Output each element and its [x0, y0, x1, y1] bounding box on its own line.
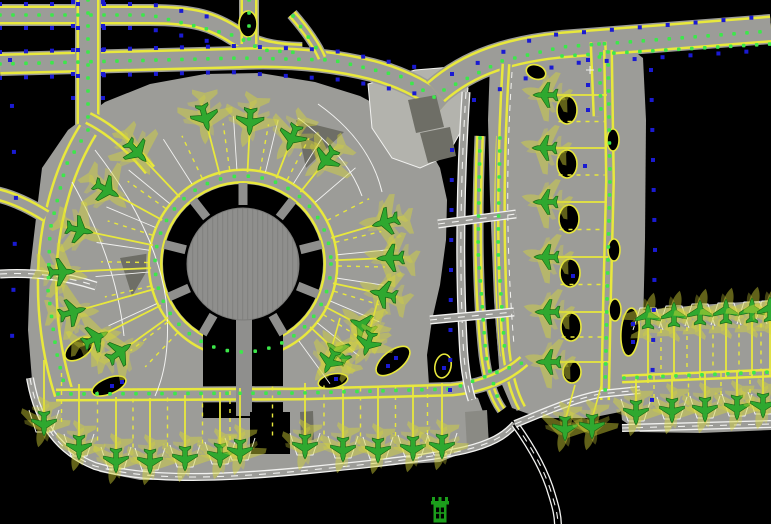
edge-light: [549, 66, 553, 70]
centerline-light: [608, 141, 612, 145]
centerline-light: [598, 55, 602, 59]
centerline-light: [179, 21, 183, 25]
centerline-light: [141, 13, 145, 17]
centerline-light: [180, 58, 184, 62]
centerline-light: [606, 50, 610, 54]
centerline-light: [476, 240, 480, 244]
centerline-light: [604, 349, 608, 353]
edge-light: [652, 218, 656, 222]
centerline-light: [303, 391, 307, 395]
edge-light: [8, 58, 12, 62]
edge-light: [0, 2, 2, 6]
centerline-light: [157, 286, 161, 290]
centerline-light: [478, 279, 482, 283]
centerline-light: [86, 0, 90, 2]
centerline-light: [503, 344, 507, 348]
centerline-light: [484, 357, 488, 361]
edge-light: [577, 61, 581, 65]
centerline-light: [147, 392, 151, 396]
centerline-light: [638, 50, 642, 54]
centerline-light: [497, 253, 501, 257]
centerline-light: [37, 13, 41, 17]
centerline-light: [501, 318, 505, 322]
edge-light: [11, 288, 15, 292]
centerline-light: [193, 188, 197, 192]
edge-light: [387, 86, 391, 90]
edge-light: [472, 98, 476, 102]
centerline-light: [247, 11, 251, 15]
centerline-light: [612, 51, 616, 55]
centerline-light: [212, 345, 216, 349]
centerline-light: [622, 376, 626, 380]
centerline-light: [247, 174, 251, 178]
centerline-light: [115, 59, 119, 63]
centerline-light: [336, 60, 340, 64]
centerline-light: [599, 94, 603, 98]
edge-light: [450, 148, 454, 152]
edge-light: [448, 388, 452, 392]
centerline-light: [732, 32, 736, 36]
centerline-light: [706, 34, 710, 38]
centerline-light: [217, 30, 221, 34]
centerline-light: [664, 48, 668, 52]
edge-light: [284, 46, 288, 50]
centerline-light: [368, 389, 372, 393]
edge-light: [13, 242, 17, 246]
centerline-light: [605, 323, 609, 327]
centerline-light: [205, 27, 209, 31]
centerline-light: [498, 136, 502, 140]
centerline-light: [716, 45, 720, 49]
centerline-light: [329, 255, 333, 259]
centerline-light: [471, 380, 475, 384]
edge-light: [284, 74, 288, 78]
edge-light: [71, 24, 75, 28]
centerline-light: [277, 391, 281, 395]
centerline-light: [755, 43, 759, 47]
centerline-light: [478, 266, 482, 270]
centerline-light: [459, 384, 463, 388]
centerline-light: [168, 312, 172, 316]
edge-light: [154, 46, 158, 50]
edge-light: [336, 77, 340, 81]
centerline-light: [605, 310, 609, 314]
edge-light: [0, 76, 2, 80]
centerline-light: [47, 276, 51, 280]
edge-light: [232, 70, 236, 74]
centerline-light: [700, 373, 704, 377]
edge-light: [744, 50, 748, 54]
centerline-light: [328, 276, 332, 280]
centerline-light: [177, 323, 181, 327]
centerline-light: [232, 56, 236, 60]
centerline-light: [230, 33, 234, 37]
centerline-light: [495, 371, 499, 375]
centerline-light: [654, 38, 658, 42]
edge-light: [206, 71, 210, 75]
centerline-light: [604, 336, 608, 340]
edge-light: [650, 128, 654, 132]
control-tower-icon: [431, 497, 449, 523]
centerline-light: [253, 44, 257, 48]
edge-light: [387, 60, 391, 64]
centerline-light: [0, 62, 2, 66]
edge-light: [12, 150, 16, 154]
edge-light: [24, 75, 28, 79]
centerline-light: [247, 0, 251, 2]
centerline-light: [128, 59, 132, 63]
edge-light: [10, 104, 14, 108]
edge-light: [582, 30, 586, 34]
centerline-light: [86, 76, 90, 80]
edge-light: [554, 33, 558, 37]
centerline-light: [58, 366, 62, 370]
centerline-light: [477, 71, 481, 75]
apron-island: [607, 129, 619, 151]
centerline-light: [502, 331, 506, 335]
centerline-light: [86, 89, 90, 93]
centerline-light: [498, 175, 502, 179]
centerline-light: [11, 13, 15, 17]
centerline-light: [606, 258, 610, 262]
centerline-light: [607, 245, 611, 249]
centerline-light: [607, 76, 611, 80]
centerline-light: [239, 350, 243, 354]
edge-light: [442, 366, 446, 370]
centerline-light: [303, 325, 307, 329]
edge-light: [205, 14, 209, 18]
edge-light: [498, 87, 502, 91]
centerline-light: [52, 211, 56, 215]
terminal-gate-stub: [239, 183, 248, 205]
edge-light: [501, 50, 505, 54]
centerline-light: [327, 241, 331, 245]
edge-light: [650, 98, 654, 102]
centerline-light: [526, 53, 530, 57]
centerline-light: [608, 206, 612, 210]
centerline-light: [297, 57, 301, 61]
edge-light: [205, 39, 209, 43]
centerline-light: [55, 353, 59, 357]
edge-light: [631, 322, 635, 326]
centerline-light: [206, 182, 210, 186]
centerline-light: [719, 33, 723, 37]
edge-light: [336, 50, 340, 54]
centerline-light: [586, 53, 590, 57]
centerline-light: [604, 375, 608, 379]
centerline-light: [251, 391, 255, 395]
centerline-light: [86, 63, 90, 67]
edge-light: [652, 308, 656, 312]
edge-light: [71, 96, 75, 100]
centerline-light: [616, 41, 620, 45]
centerline-light: [454, 82, 458, 86]
terminal-concourse: [187, 208, 299, 320]
centerline-light: [607, 219, 611, 223]
centerline-light: [410, 82, 414, 86]
centerline-light: [121, 392, 125, 396]
edge-light: [120, 380, 124, 384]
centerline-light: [219, 57, 223, 61]
centerline-light: [355, 390, 359, 394]
edge-light: [128, 73, 132, 77]
apron-island: [608, 239, 620, 261]
edge-light: [101, 72, 105, 76]
centerline-light: [253, 349, 257, 353]
edge-light: [652, 188, 656, 192]
centerline-light: [674, 374, 678, 378]
edge-light: [24, 26, 28, 30]
centerline-light: [758, 30, 762, 34]
centerline-light: [86, 128, 90, 132]
centerline-light: [182, 197, 186, 201]
centerline-light: [629, 40, 633, 44]
centerline-light: [53, 340, 57, 344]
centerline-light: [47, 263, 51, 267]
edge-light: [180, 71, 184, 75]
centerline-light: [599, 107, 603, 111]
centerline-light: [481, 318, 485, 322]
centerline-light: [752, 371, 756, 375]
edge-light: [653, 248, 657, 252]
edge-light: [448, 358, 452, 362]
centerline-light: [499, 292, 503, 296]
edge-light: [71, 48, 75, 52]
centerline-light: [661, 375, 665, 379]
centerline-light: [65, 161, 69, 165]
centerline-light: [154, 273, 158, 277]
centerline-light: [265, 49, 269, 53]
edge-light: [310, 76, 314, 80]
edge-light: [571, 274, 575, 278]
centerline-light: [141, 59, 145, 63]
centerline-light: [538, 50, 542, 54]
cad-viewport: [0, 0, 771, 524]
centerline-light: [482, 331, 486, 335]
centerline-light: [86, 37, 90, 41]
edge-light: [449, 238, 453, 242]
edge-light: [638, 25, 642, 29]
centerline-light: [238, 391, 242, 395]
centerline-light: [51, 328, 55, 332]
centerline-light: [291, 51, 295, 55]
centerline-light: [187, 332, 191, 336]
edge-light: [412, 91, 416, 95]
centerline-light: [24, 13, 28, 17]
centerline-light: [577, 44, 581, 48]
centerline-light: [226, 349, 230, 353]
centerline-light: [56, 392, 60, 396]
edge-light: [633, 57, 637, 61]
centerline-light: [50, 61, 54, 65]
centerline-light: [551, 47, 555, 51]
centerline-light: [47, 250, 51, 254]
centerline-light: [497, 227, 501, 231]
centerline-light: [648, 375, 652, 379]
centerline-light: [76, 60, 80, 64]
centerline-light: [713, 372, 717, 376]
centerline-light: [86, 50, 90, 54]
centerline-light: [89, 60, 93, 64]
centerline-light: [312, 314, 316, 318]
centerline-light: [374, 68, 378, 72]
centerline-light: [69, 392, 73, 396]
centerline-light: [286, 187, 290, 191]
edge-light: [50, 75, 54, 79]
edge-light: [586, 83, 590, 87]
centerline-light: [95, 392, 99, 396]
centerline-light: [50, 13, 54, 17]
centerline-light: [206, 57, 210, 61]
centerline-light: [322, 228, 326, 232]
centerline-light: [742, 44, 746, 48]
centerline-light: [489, 65, 493, 69]
centerline-light: [513, 56, 517, 60]
centerline-light: [167, 58, 171, 62]
edge-light: [154, 3, 158, 7]
centerline-light: [153, 259, 157, 263]
centerline-light: [267, 346, 271, 350]
centerline-light: [342, 390, 346, 394]
terminal-pier: [236, 316, 252, 416]
centerline-light: [292, 334, 296, 338]
centerline-light: [608, 193, 612, 197]
centerline-light: [167, 18, 171, 22]
edge-light: [76, 48, 80, 52]
centerline-light: [483, 375, 487, 379]
centerline-light: [24, 62, 28, 66]
centerline-light: [62, 174, 66, 178]
centerline-light: [599, 52, 603, 56]
centerline-light: [690, 47, 694, 51]
centerline-light: [46, 289, 50, 293]
edge-light: [666, 23, 670, 27]
centerline-light: [687, 374, 691, 378]
centerline-light: [477, 214, 481, 218]
edge-light: [449, 268, 453, 272]
centerline-light: [498, 149, 502, 153]
centerline-light: [325, 290, 329, 294]
centerline-light: [63, 61, 67, 65]
centerline-light: [488, 369, 492, 373]
centerline-light: [497, 266, 501, 270]
centerline-light: [37, 61, 41, 65]
centerline-light: [212, 392, 216, 396]
centerline-light: [421, 88, 425, 92]
centerline-light: [625, 50, 629, 54]
edge-light: [449, 328, 453, 332]
centerline-light: [242, 38, 246, 42]
centerline-light: [603, 42, 607, 46]
centerline-light: [314, 46, 318, 50]
centerline-light: [280, 341, 284, 345]
centerline-light: [349, 63, 353, 67]
centerline-light: [63, 13, 67, 17]
centerline-light: [560, 54, 564, 58]
cad-canvas[interactable]: [0, 0, 771, 524]
centerline-light: [497, 201, 501, 205]
edge-light: [610, 28, 614, 32]
centerline-light: [677, 47, 681, 51]
centerline-light: [603, 388, 607, 392]
edge-light: [688, 53, 692, 57]
centerline-light: [86, 102, 90, 106]
centerline-light: [278, 50, 282, 54]
centerline-light: [247, 24, 251, 28]
centerline-light: [48, 302, 52, 306]
edge-light: [716, 51, 720, 55]
edge-light: [412, 65, 416, 69]
centerline-light: [607, 115, 611, 119]
centerline-light: [245, 56, 249, 60]
centerline-light: [606, 284, 610, 288]
centerline-light: [108, 392, 112, 396]
centerline-light: [573, 53, 577, 57]
edge-light: [76, 74, 80, 78]
edge-light: [258, 72, 262, 76]
centerline-light: [608, 167, 612, 171]
centerline-light: [291, 14, 295, 18]
edge-light: [76, 2, 80, 6]
centerline-light: [607, 102, 611, 106]
centerline-light: [271, 57, 275, 61]
centerline-light: [703, 46, 707, 50]
centerline-light: [86, 115, 90, 119]
edge-light: [449, 298, 453, 302]
edge-light: [651, 338, 655, 342]
centerline-light: [483, 344, 487, 348]
edge-light: [476, 61, 480, 65]
edge-light: [50, 26, 54, 30]
edge-light: [649, 68, 653, 72]
centerline-light: [199, 340, 203, 344]
centerline-light: [465, 77, 469, 81]
edge-light: [128, 2, 132, 6]
edge-light: [71, 0, 75, 4]
centerline-light: [50, 315, 54, 319]
centerline-light: [310, 58, 314, 62]
centerline-light: [607, 89, 611, 93]
centerline-light: [387, 71, 391, 75]
centerline-light: [399, 75, 403, 79]
edge-light: [586, 108, 590, 112]
centerline-light: [480, 305, 484, 309]
centerline-light: [193, 57, 197, 61]
edge-light: [583, 164, 587, 168]
centerline-light: [102, 13, 106, 17]
centerline-light: [478, 149, 482, 153]
edge-light: [651, 368, 655, 372]
edge-light: [361, 55, 365, 59]
centerline-light: [192, 24, 196, 28]
centerline-light: [394, 389, 398, 393]
edge-light: [14, 196, 18, 200]
centerline-light: [49, 224, 53, 228]
edge-light: [694, 21, 698, 25]
centerline-light: [479, 292, 483, 296]
centerline-light: [606, 271, 610, 275]
centerline-light: [154, 58, 158, 62]
centerline-light: [299, 25, 303, 29]
centerline-light: [420, 388, 424, 392]
centerline-light: [161, 299, 165, 303]
edge-light: [232, 44, 236, 48]
centerline-light: [651, 49, 655, 53]
centerline-light: [316, 391, 320, 395]
centerline-light: [407, 388, 411, 392]
edge-light: [334, 377, 338, 381]
edge-light: [586, 58, 590, 62]
